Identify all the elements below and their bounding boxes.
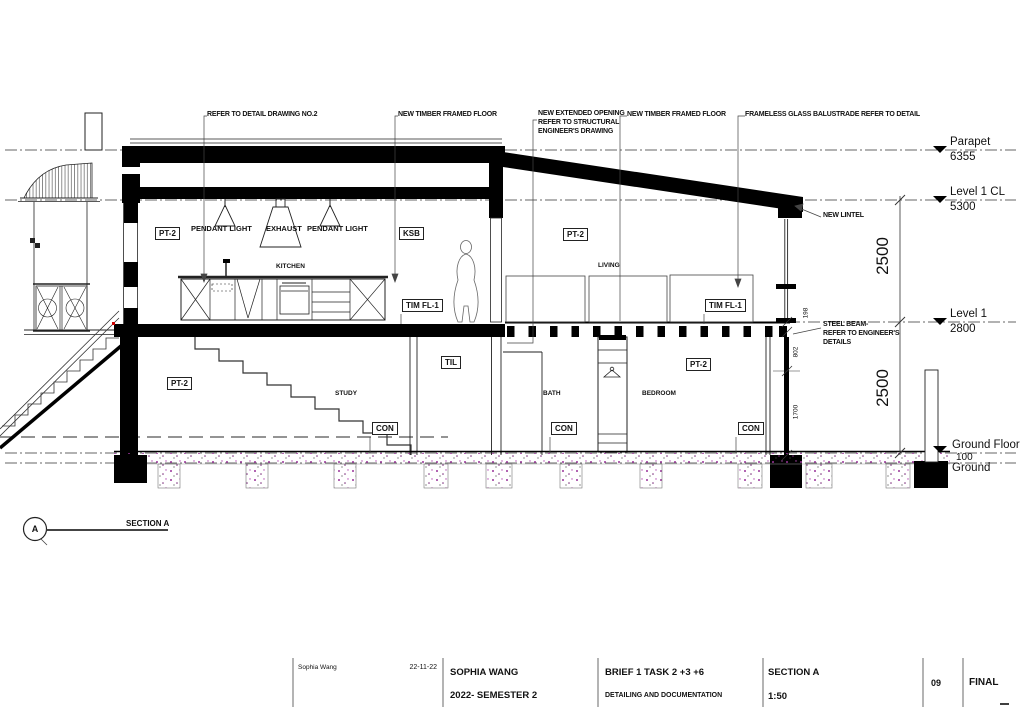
level-1-elevation: 2800 bbox=[950, 323, 976, 336]
pendant-light-label-left: PENDANT LIGHT bbox=[191, 225, 252, 234]
left-wall bbox=[122, 146, 140, 167]
tag-ksb: KSB bbox=[399, 227, 424, 240]
hanger-icon bbox=[604, 367, 620, 377]
chimney bbox=[85, 113, 102, 150]
internal-walls bbox=[410, 337, 770, 455]
sink bbox=[212, 284, 232, 291]
tag-timfl1-living: TIM FL-1 bbox=[705, 299, 746, 312]
callout-timber-floor-2: NEW TIMBER FRAMED FLOOR bbox=[627, 111, 726, 119]
room-bath: BATH bbox=[543, 390, 561, 397]
concrete-slab bbox=[114, 453, 950, 464]
level1cl-marker bbox=[933, 196, 947, 203]
dim-802: 802 bbox=[792, 347, 799, 358]
level1-marker bbox=[933, 318, 947, 325]
callout-timber-floor-1: NEW TIMBER FRAMED FLOOR bbox=[398, 111, 497, 119]
tag-timfl1-kitchen: TIM FL-1 bbox=[402, 299, 443, 312]
level-ground-floor-name: Ground Floor bbox=[952, 439, 1020, 452]
level-parapet-elevation: 6355 bbox=[950, 151, 976, 164]
titleblock-course: 2022- SEMESTER 2 bbox=[450, 691, 537, 702]
wall-footing bbox=[114, 455, 147, 483]
titleblock-signature: Sophia Wang bbox=[298, 664, 337, 671]
bullnose-roof bbox=[24, 163, 92, 198]
tag-con-bath: CON bbox=[551, 422, 577, 435]
level-1cl-name: Level 1 CL bbox=[950, 186, 1005, 199]
room-kitchen: KITCHEN bbox=[276, 263, 305, 270]
titleblock-brief: BRIEF 1 TASK 2 +3 +6 bbox=[605, 668, 704, 679]
person-figure bbox=[454, 241, 478, 323]
new-lintel bbox=[778, 201, 802, 218]
tag-pt2-bedroom: PT-2 bbox=[686, 358, 711, 371]
timber-joist-floor bbox=[505, 323, 790, 338]
sloped-roof bbox=[503, 152, 803, 212]
stair-stringer bbox=[0, 346, 121, 448]
lace-balustrade bbox=[33, 284, 90, 331]
section-marker-letter: A bbox=[32, 524, 39, 534]
room-bedroom: BEDROOM bbox=[642, 390, 676, 397]
first-floor-slab bbox=[114, 324, 505, 337]
pendant-light-label-right: PENDANT LIGHT bbox=[307, 225, 368, 234]
post-footing bbox=[914, 461, 948, 488]
tag-til: TIL bbox=[441, 356, 461, 369]
pendant-lights bbox=[215, 199, 340, 226]
mid-column bbox=[489, 146, 503, 218]
callout-new-lintel: NEW LINTEL bbox=[823, 212, 864, 220]
titleblock-author: SOPHIA WANG bbox=[450, 668, 518, 679]
flat-roof bbox=[122, 146, 505, 163]
tag-con-bedroom: CON bbox=[738, 422, 764, 435]
titleblock-scale: 1:50 bbox=[768, 692, 787, 703]
parapet-marker bbox=[933, 146, 947, 153]
dim-198: 198 bbox=[802, 308, 809, 319]
level-ground-name: Ground bbox=[952, 462, 990, 475]
building-shell bbox=[112, 139, 803, 455]
dim-1700: 1700 bbox=[792, 405, 799, 419]
tag-pt2-study: PT-2 bbox=[167, 377, 192, 390]
level-1cl-elevation: 5300 bbox=[950, 201, 976, 214]
section-drawing-sheet: REFER TO DETAIL DRAWING NO.2 NEW TIMBER … bbox=[0, 0, 1024, 724]
exhaust-hood bbox=[260, 199, 301, 247]
tag-con-study: CON bbox=[372, 422, 398, 435]
titleblock-status: FINAL bbox=[969, 677, 998, 689]
exhaust-label: EXHAUST bbox=[266, 225, 302, 234]
glass-balustrade bbox=[776, 219, 796, 323]
post-bracket bbox=[30, 238, 35, 243]
titleblock-sheet-number: 09 bbox=[931, 678, 941, 688]
wardrobe bbox=[598, 335, 627, 452]
dim-upper-2500: 2500 bbox=[873, 237, 893, 275]
level-1-name: Level 1 bbox=[950, 308, 987, 321]
callout-detail-drawing: REFER TO DETAIL DRAWING NO.2 bbox=[207, 111, 317, 119]
callout-glass-balustrade: FRAMELESS GLASS BALUSTRADE REFER TO DETA… bbox=[745, 111, 920, 119]
titleblock-subtitle: DETAILING AND DOCUMENTATION bbox=[605, 692, 722, 700]
callout-steel-beam: STEEL BEAM- REFER TO ENGINEER'S DETAILS bbox=[823, 320, 899, 347]
oven bbox=[280, 286, 309, 314]
tag-pt2-living: PT-2 bbox=[563, 228, 588, 241]
level-parapet-name: Parapet bbox=[950, 136, 990, 149]
section-linework bbox=[0, 0, 1024, 724]
dim-lower-2500: 2500 bbox=[873, 369, 893, 407]
ceiling-slab bbox=[138, 187, 492, 199]
titleblock-drawing-title: SECTION A bbox=[768, 668, 819, 679]
veranda bbox=[18, 113, 120, 335]
room-living: LIVING bbox=[598, 262, 620, 269]
titleblock-date: 22-11-22 bbox=[395, 664, 437, 672]
tag-pt2-kitchen: PT-2 bbox=[155, 227, 180, 240]
callout-extended-opening: NEW EXTENDED OPENING REFER TO STRUCTURAL… bbox=[538, 109, 625, 136]
ground-works bbox=[114, 370, 950, 488]
section-marker-label: SECTION A bbox=[126, 519, 169, 528]
room-study: STUDY bbox=[335, 390, 357, 397]
